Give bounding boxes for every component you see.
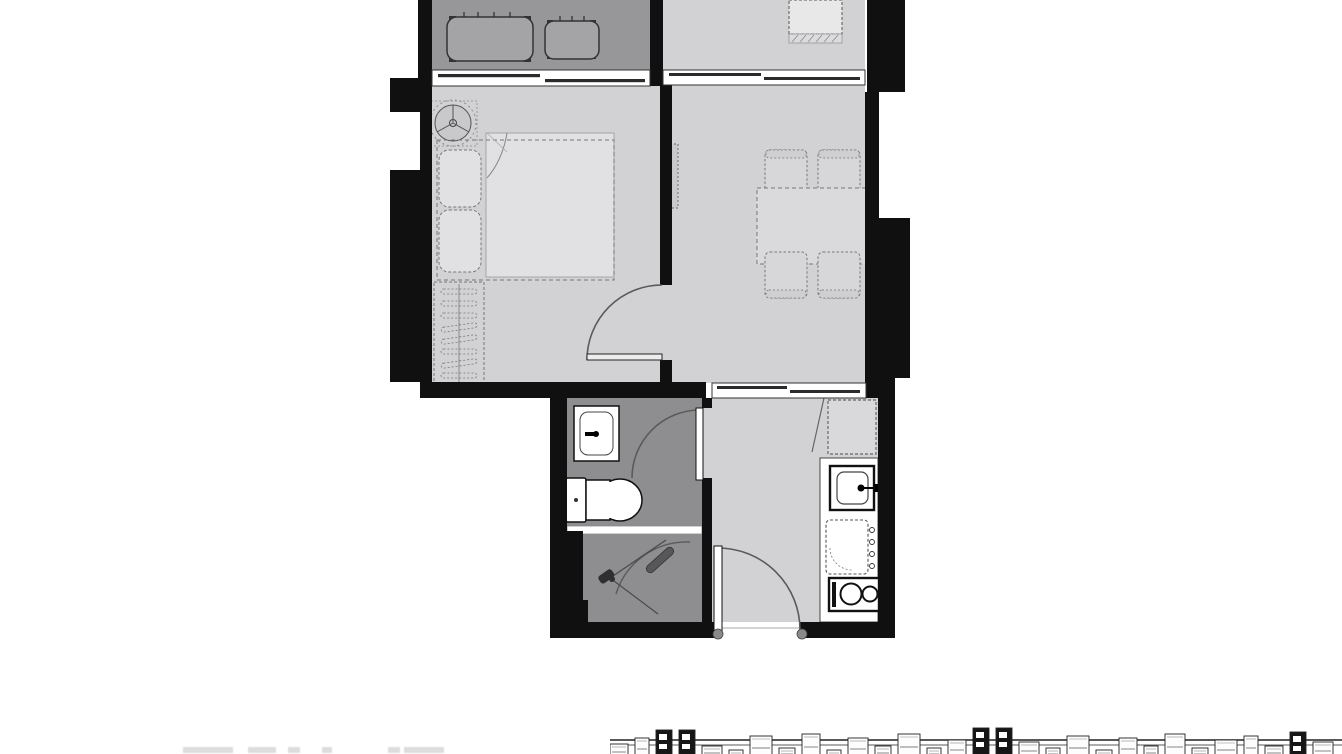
building-key-plan-strip	[610, 718, 1342, 754]
faucet-base	[874, 484, 878, 492]
site-module-unit	[898, 734, 920, 754]
pillow	[439, 150, 481, 207]
site-module-unit	[1165, 734, 1185, 754]
site-module-outline	[848, 738, 868, 754]
site-module-window	[659, 734, 667, 740]
site-module-outline	[1019, 742, 1039, 754]
bed-mattress	[486, 133, 614, 277]
site-module-unit	[848, 738, 868, 754]
site-module-unit	[1144, 746, 1158, 754]
site-module-outline	[1096, 750, 1112, 754]
wall-bedroom-bottom	[420, 382, 706, 398]
site-module-outline	[996, 728, 1012, 754]
wall	[865, 218, 910, 378]
door-leaf	[714, 546, 722, 632]
room-floors	[432, 0, 878, 622]
caption-fragment	[288, 747, 300, 753]
window-pane	[717, 386, 787, 389]
dishwasher	[826, 520, 875, 574]
sink-faucet	[858, 485, 865, 492]
site-module-unit	[729, 750, 743, 754]
shower-curb	[567, 526, 702, 534]
site-module-window	[1293, 736, 1301, 742]
site-module-outline	[729, 750, 743, 754]
control-panel	[832, 582, 836, 607]
door-leaf	[587, 354, 662, 360]
door-leaf	[696, 408, 703, 480]
toilet-seam-cover	[588, 482, 612, 518]
wall	[650, 0, 663, 86]
site-module-unit	[802, 734, 820, 754]
dining-chair	[765, 252, 807, 298]
bed	[437, 133, 614, 280]
flush-button	[574, 498, 578, 502]
sliding-window-kitchen	[712, 383, 866, 398]
site-module-dark-tower	[1290, 732, 1306, 754]
site-module-dark-tower	[996, 728, 1012, 754]
wall-bath-hall	[702, 478, 712, 622]
site-module-outline	[679, 730, 695, 754]
pillow	[439, 210, 481, 272]
site-module-outline	[827, 750, 841, 754]
dining-chair	[818, 252, 860, 298]
stove-cooktop	[829, 578, 879, 611]
site-module-unit	[948, 740, 966, 754]
site-module-unit	[1244, 736, 1258, 754]
site-module-outline	[610, 744, 628, 754]
site-module-unit	[610, 744, 628, 754]
caption-fragment	[388, 747, 400, 753]
site-module-outline	[1313, 742, 1333, 754]
site-module-window	[999, 732, 1007, 738]
wall-step	[550, 600, 588, 622]
wall	[390, 78, 432, 112]
ac-condenser-unit-small	[545, 16, 599, 59]
site-module-unit	[750, 736, 772, 754]
wall-bath-hall-stub	[702, 398, 712, 408]
ac-condenser-unit-large	[447, 12, 533, 62]
wall	[865, 92, 879, 220]
site-module-unit	[1119, 738, 1137, 754]
window-pane	[764, 77, 860, 80]
site-module-window	[976, 742, 984, 747]
wall-bedroom-divider-stub	[660, 360, 672, 382]
site-module-dark-tower	[679, 730, 695, 754]
site-module-unit	[1215, 740, 1237, 754]
wall-bedroom-divider	[660, 85, 672, 285]
site-module-outline	[1215, 740, 1237, 754]
wall	[390, 170, 432, 382]
wall	[867, 0, 905, 92]
site-module-window	[682, 744, 690, 749]
site-module-unit	[1019, 742, 1039, 754]
faucet-lever	[585, 432, 594, 436]
site-module-dark-tower	[973, 728, 989, 754]
site-module-window	[976, 732, 984, 738]
bedroom-door-opening-floor	[660, 285, 672, 360]
burner-large	[841, 584, 862, 605]
wall	[420, 112, 432, 170]
site-module-unit	[1192, 748, 1208, 754]
wall-kitchen-right	[878, 398, 895, 638]
site-module-window	[999, 742, 1007, 747]
window-pane	[438, 74, 540, 77]
kitchen-sink	[830, 466, 878, 510]
caption-fragment	[404, 747, 444, 753]
site-module-dark-tower	[656, 730, 672, 754]
wall	[418, 0, 432, 86]
site-module-unit	[827, 750, 841, 754]
bathroom-vanity	[574, 406, 619, 461]
toilet	[566, 478, 642, 522]
condenser-unit-right-balcony	[789, 0, 842, 43]
refrigerator	[828, 400, 876, 454]
site-module-unit	[702, 746, 722, 754]
sliding-window-balcony-left	[432, 70, 650, 86]
site-module-unit	[1067, 736, 1089, 754]
site-module-window	[682, 734, 690, 740]
site-module-outline	[1119, 738, 1137, 754]
site-module-unit	[635, 738, 649, 754]
floor-plan-drawing	[0, 0, 1342, 754]
caption-fragment	[183, 747, 233, 753]
window-pane	[545, 79, 645, 82]
door-jamb-nub	[713, 629, 723, 639]
wall-window-jamb	[866, 383, 878, 398]
wall-bathroom-left	[550, 398, 567, 622]
site-module-unit	[1265, 746, 1283, 754]
site-module-outline	[656, 730, 672, 754]
site-module-unit	[1096, 750, 1112, 754]
floor-plan-page	[0, 0, 1342, 754]
wall-bottom-left	[550, 622, 720, 638]
caption-fragment	[248, 747, 276, 753]
site-module-outline	[948, 740, 966, 754]
window-pane	[790, 390, 860, 393]
site-module-window	[659, 744, 667, 749]
window-pane	[669, 73, 761, 76]
site-module-outline	[973, 728, 989, 754]
site-module-unit	[927, 748, 941, 754]
caption-fragment	[322, 747, 332, 753]
door-jamb-nub	[797, 629, 807, 639]
wardrobe	[434, 282, 484, 384]
site-module-unit	[1313, 742, 1333, 754]
sliding-window-balcony-right	[663, 70, 865, 85]
burner-small	[863, 587, 878, 602]
site-module-unit	[1046, 748, 1060, 754]
site-module-unit	[779, 748, 795, 754]
site-module-unit	[875, 746, 891, 754]
shower-head-nozzle	[609, 576, 615, 582]
site-module-window	[1293, 746, 1301, 751]
site-module-outline	[635, 738, 649, 754]
